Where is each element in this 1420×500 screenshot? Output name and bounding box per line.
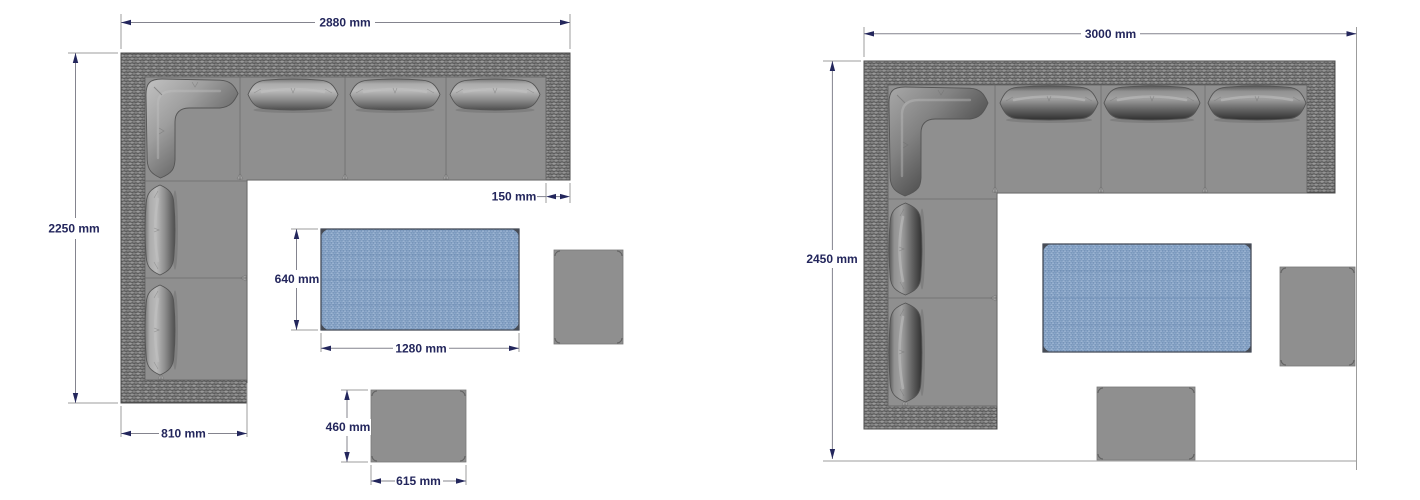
svg-text:3000 mm: 3000 mm (1085, 27, 1136, 41)
svg-text:2250 mm: 2250 mm (48, 222, 99, 236)
svg-text:150 mm: 150 mm (492, 190, 537, 204)
svg-text:615 mm: 615 mm (396, 474, 441, 488)
svg-text:810 mm: 810 mm (161, 427, 206, 441)
svg-text:640 mm: 640 mm (275, 272, 320, 286)
svg-text:2880 mm: 2880 mm (319, 16, 370, 30)
svg-text:2450 mm: 2450 mm (806, 252, 857, 266)
svg-text:460 mm: 460 mm (326, 420, 371, 434)
svg-text:1280 mm: 1280 mm (395, 341, 446, 355)
